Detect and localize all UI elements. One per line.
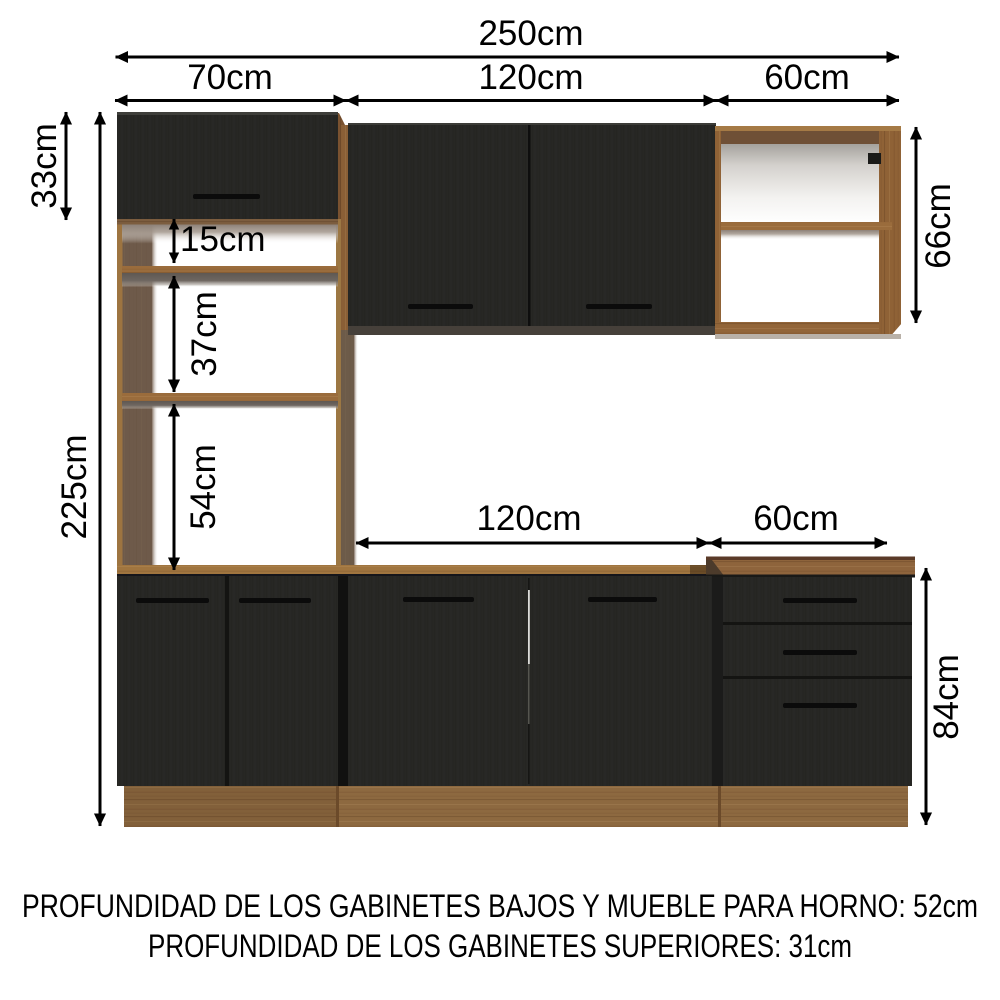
svg-text:PROFUNDIDAD DE LOS GABINETES S: PROFUNDIDAD DE LOS GABINETES SUPERIORES:…	[148, 928, 852, 964]
svg-text:15cm: 15cm	[180, 220, 266, 259]
svg-text:120cm: 120cm	[478, 58, 583, 97]
svg-text:70cm: 70cm	[187, 58, 273, 97]
svg-text:33cm: 33cm	[25, 123, 64, 209]
svg-text:120cm: 120cm	[476, 499, 581, 538]
svg-text:84cm: 84cm	[927, 654, 966, 740]
svg-text:54cm: 54cm	[184, 444, 223, 530]
svg-text:37cm: 37cm	[185, 291, 224, 377]
svg-text:250cm: 250cm	[478, 14, 583, 53]
svg-text:66cm: 66cm	[919, 183, 958, 269]
svg-text:60cm: 60cm	[764, 58, 850, 97]
svg-text:225cm: 225cm	[55, 434, 94, 539]
svg-text:60cm: 60cm	[753, 499, 839, 538]
svg-text:PROFUNDIDAD DE LOS GABINETES B: PROFUNDIDAD DE LOS GABINETES BAJOS Y MUE…	[22, 888, 978, 924]
